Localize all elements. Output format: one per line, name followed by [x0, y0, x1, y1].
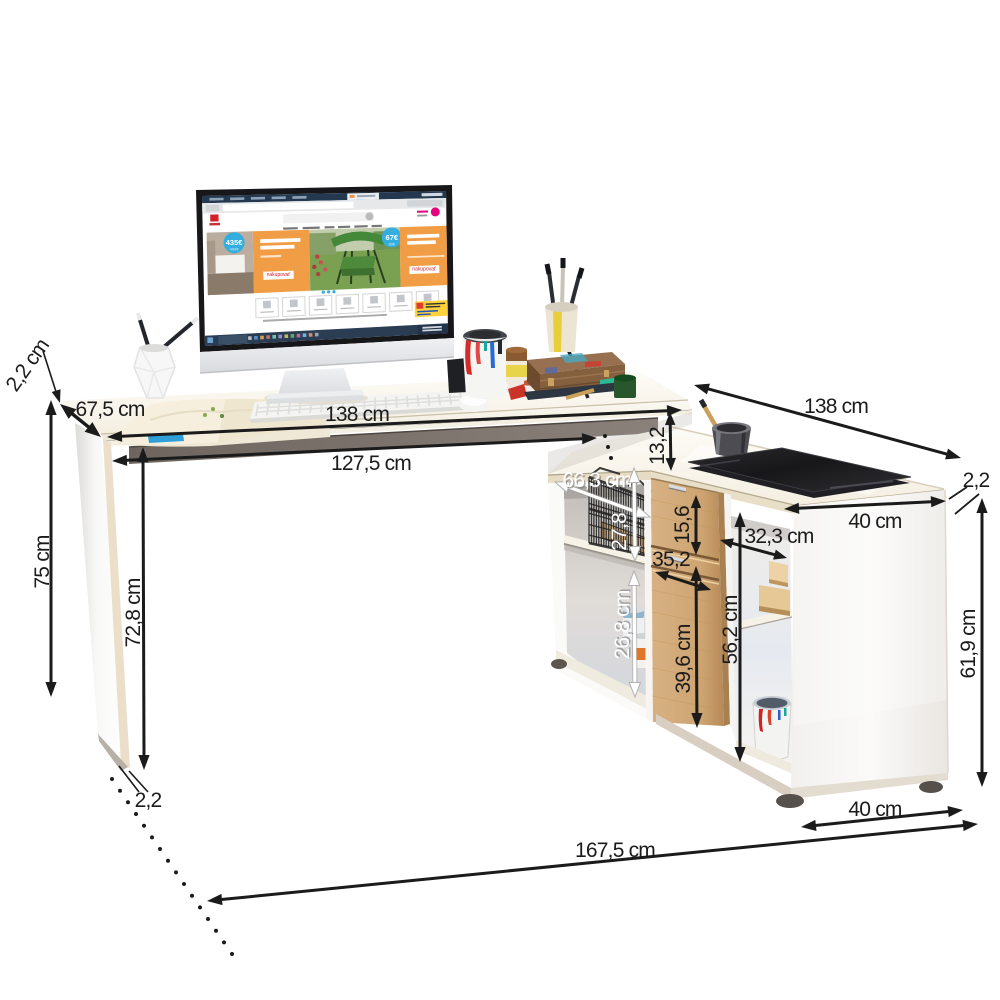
svg-text:40 cm: 40 cm — [848, 798, 901, 821]
svg-text:56,2 cm: 56,2 cm — [719, 595, 742, 664]
svg-text:127,5 cm: 127,5 cm — [331, 452, 411, 475]
svg-text:15,6: 15,6 — [671, 506, 694, 544]
svg-text:nakupovať: nakupovať — [412, 266, 436, 272]
svg-text:nakupovať: nakupovať — [267, 272, 291, 278]
svg-text:61,9 cm: 61,9 cm — [957, 609, 980, 678]
svg-text:2,2: 2,2 — [135, 789, 162, 812]
svg-text:66,3 cm: 66,3 cm — [562, 469, 631, 492]
svg-text:13,2: 13,2 — [646, 427, 669, 465]
svg-text:2,2: 2,2 — [963, 469, 990, 492]
svg-text:26,8 cm: 26,8 cm — [611, 590, 634, 659]
svg-text:138 cm: 138 cm — [325, 403, 389, 426]
svg-text:75 cm: 75 cm — [31, 535, 54, 588]
svg-text:138 cm: 138 cm — [804, 395, 868, 418]
svg-text:40 cm: 40 cm — [848, 510, 901, 533]
svg-text:499€: 499€ — [230, 247, 240, 252]
svg-text:72,8 cm: 72,8 cm — [122, 578, 145, 647]
svg-text:167,5 cm: 167,5 cm — [575, 839, 655, 862]
svg-text:39,6 cm: 39,6 cm — [672, 624, 695, 693]
svg-text:27,8: 27,8 — [608, 513, 631, 551]
svg-text:67,5 cm: 67,5 cm — [75, 398, 144, 421]
svg-text:89€: 89€ — [388, 241, 395, 246]
svg-text:32,3 cm: 32,3 cm — [744, 525, 813, 548]
svg-text:35,2: 35,2 — [652, 548, 690, 571]
